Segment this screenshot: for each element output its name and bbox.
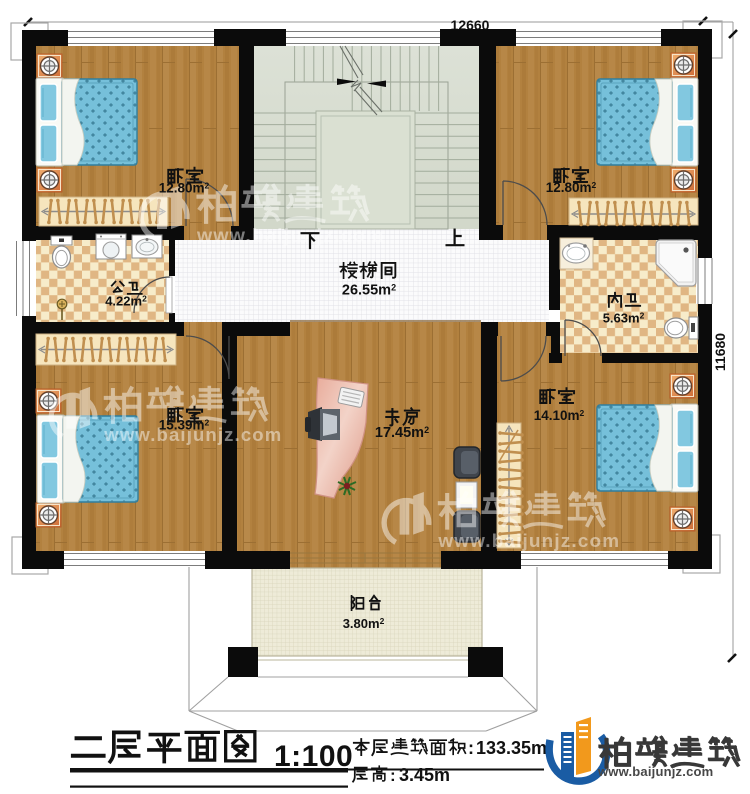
svg-text:17.45m2: 17.45m2 [375,425,429,441]
svg-text:3.45m: 3.45m [399,765,450,785]
svg-text::: : [390,766,396,785]
svg-text:12.80m2: 12.80m2 [159,181,210,196]
svg-text:www.baijunjz.com: www.baijunjz.com [597,764,713,779]
svg-text:12.80m2: 12.80m2 [546,180,597,195]
svg-text:14.10m2: 14.10m2 [534,408,585,423]
svg-text:4.22m2: 4.22m2 [105,294,147,309]
svg-text:3.80m2: 3.80m2 [343,616,385,631]
svg-text:5.63m2: 5.63m2 [603,311,645,326]
svg-text:133.35m2: 133.35m2 [476,738,553,758]
svg-text:26.55m2: 26.55m2 [342,282,396,298]
svg-text:15.39m2: 15.39m2 [159,418,210,433]
svg-text::: : [468,738,474,758]
svg-text:1:100: 1:100 [274,740,353,773]
svg-text:11680: 11680 [712,333,728,371]
